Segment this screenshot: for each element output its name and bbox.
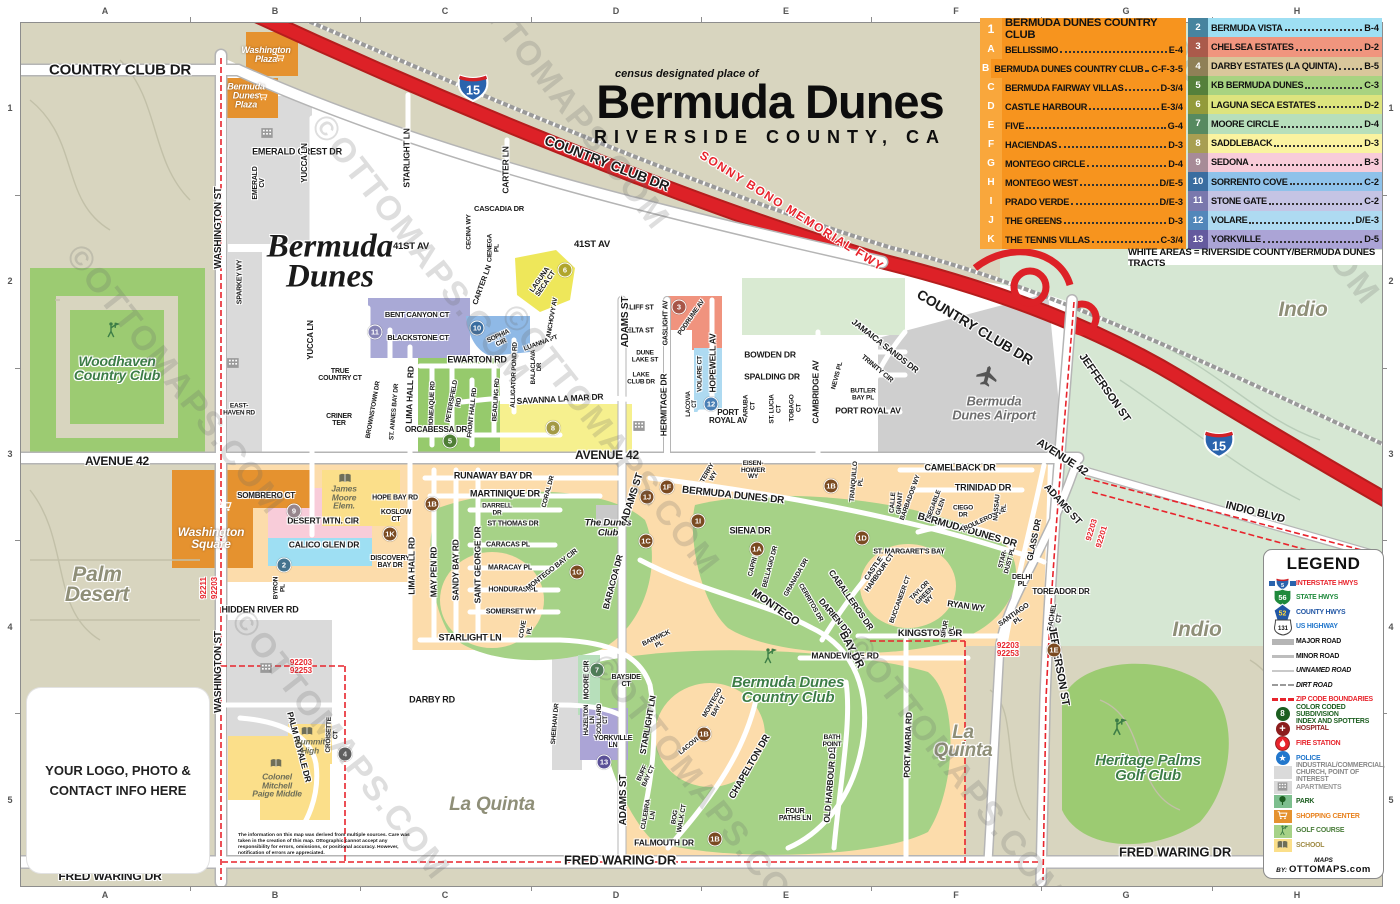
- grid-tick: [15, 713, 20, 714]
- map-spotter: 1G: [570, 565, 585, 580]
- index-row-key: K: [980, 230, 1002, 249]
- index-row-ref: C-3/4: [1161, 235, 1186, 245]
- legend-row-label: POLICE: [1296, 755, 1320, 762]
- street-label: CASCADIA DR: [474, 205, 524, 213]
- index-row: 2BERMUDA VISTAB-4: [1188, 18, 1382, 37]
- street-label: AVENUE 42: [85, 455, 149, 467]
- street-label: FALMOUTH DR: [634, 839, 694, 848]
- index-row-key: G: [980, 154, 1002, 173]
- street-label: PORT ROYAL AV: [835, 407, 900, 416]
- grid-tick: [871, 17, 872, 22]
- legend-row-label: US HIGHWAY: [1296, 623, 1338, 630]
- leader-dots: [1026, 127, 1165, 129]
- index-row-ref: D-4: [1168, 159, 1186, 169]
- legend-footer: MAPS BY:OTTOMAPS.com: [1269, 853, 1378, 876]
- leader-dots: [1125, 89, 1158, 91]
- street-label: Washington Square: [178, 526, 244, 550]
- index-row-key: B: [980, 59, 991, 78]
- street-label: 92203: [211, 577, 219, 599]
- street-label: HAZELTON LN: [584, 705, 596, 736]
- leader-dots: [1281, 126, 1362, 128]
- leader-dots: [1296, 49, 1363, 51]
- leader-dots: [1145, 70, 1149, 72]
- street-label: CALICO GLEN DR: [289, 541, 359, 550]
- svg-text:56: 56: [1278, 594, 1286, 603]
- leader-dots: [1064, 222, 1166, 224]
- map-spotter: 1B: [697, 727, 712, 742]
- logo-line1: YOUR LOGO, PHOTO &: [45, 761, 191, 781]
- grid-number: 2: [7, 276, 12, 286]
- grid-letter: E: [783, 890, 789, 900]
- subdivision-index-left: 1 BERMUDA DUNES COUNTRY CLUB ABELLISSIMO…: [980, 18, 1186, 249]
- street-label: FRED WARING DR: [1119, 845, 1231, 858]
- index-row-key: E: [980, 116, 1002, 135]
- index-row: 11STONE GATEC-2: [1188, 191, 1382, 210]
- leader-dots: [1263, 241, 1362, 243]
- grid-tick: [360, 17, 361, 22]
- index-row-ref: C-F-3-5: [1151, 64, 1186, 74]
- street-label: SIENA DR: [729, 526, 770, 535]
- road-major-icon: [1269, 639, 1296, 645]
- apt-icon: [227, 357, 240, 370]
- index-row-name: PRADO VERDE: [1002, 197, 1069, 207]
- street-label: MARTINIQUE DR: [470, 489, 540, 498]
- street-label: SANDY BAY RD: [452, 539, 461, 600]
- index-row-number: 11: [1188, 191, 1208, 210]
- index-row-name: BERMUDA DUNES COUNTRY CLUB: [991, 64, 1143, 74]
- index-row-name: THE GREENS: [1002, 216, 1062, 226]
- street-label: CAMBRIDGE AV: [812, 360, 821, 423]
- road-unnamed-icon: [1269, 670, 1296, 672]
- street-label: James Moore Elem.: [331, 484, 356, 510]
- index-row-ref: D-3: [1364, 138, 1382, 148]
- street-label: CAMELBACK DR: [924, 463, 995, 472]
- grid-tick: [1212, 886, 1213, 891]
- grid-letter: E: [783, 6, 789, 16]
- leader-dots: [1251, 164, 1363, 166]
- leader-dots: [1249, 222, 1353, 224]
- index-row-name: BERMUDA FAIRWAY VILLAS: [1002, 83, 1123, 93]
- index-row: GMONTEGO CIRCLED-4: [980, 154, 1186, 173]
- index-row: BBERMUDA DUNES COUNTRY CLUBC-F-3-5: [980, 59, 1186, 78]
- school-icon: [1269, 839, 1296, 852]
- legend-row-shopping: SHOPPING CENTER: [1269, 809, 1378, 824]
- street-label: ST THOMAS DR: [488, 520, 539, 527]
- legend-row-label: HOSPITAL: [1296, 725, 1329, 732]
- street-label: TRINIDAD DR: [955, 483, 1011, 492]
- street-label: DUNE LAKE ST: [632, 350, 658, 363]
- map-spotter: 9: [287, 504, 302, 519]
- street-label: Indio: [1278, 300, 1327, 320]
- street-label: HERMITAGE DR: [660, 374, 669, 437]
- index-row-ref: D/E-3: [1356, 215, 1383, 225]
- legend-row-park: PARK: [1269, 795, 1378, 810]
- legend-row-label: MINOR ROAD: [1296, 653, 1339, 660]
- street-label: CARACAS PL: [486, 541, 530, 548]
- street-label: STARLIGHT LN: [403, 128, 412, 187]
- street-label: Bermuda Dunes Airport: [952, 394, 1036, 421]
- index-row-key: H: [980, 173, 1002, 192]
- map-spotter: 8: [546, 421, 561, 436]
- index-row-name: SORRENTO COVE: [1208, 177, 1288, 187]
- police-icon: ★: [1269, 751, 1296, 765]
- street-label: EISEN- HOWER WY: [741, 461, 765, 481]
- interstate-shield-icon: 15: [1202, 428, 1236, 458]
- street-label: YUCCA LN: [307, 320, 315, 359]
- grid-tick: [15, 195, 20, 196]
- street-label: ARUBA CT: [743, 395, 756, 417]
- street-label: FRED WARING DR: [564, 853, 676, 866]
- index-row-ref: D-3: [1168, 216, 1186, 226]
- map-spotter: 1C: [639, 534, 654, 549]
- legend-row-industrial: INDUSTRIAL/COMMERCIAL, CHURCH, POINT OF …: [1269, 766, 1378, 781]
- index-row-ref: D/E-3: [1160, 197, 1187, 207]
- grid-tick: [531, 886, 532, 891]
- grid-letter: C: [442, 890, 449, 900]
- legend: LEGEND 5INTERSTATE HWYS56STATE HWYS52COU…: [1263, 549, 1384, 879]
- legend-row-label: INTERSTATE HWYS: [1296, 580, 1358, 587]
- grid-letter: D: [613, 6, 620, 16]
- grid-tick: [1382, 368, 1387, 369]
- index-row-key: F: [980, 135, 1002, 154]
- index-row-name: STONE GATE: [1208, 196, 1267, 206]
- street-label: La Quinta: [449, 796, 535, 814]
- street-label: TOREADOR DR: [1032, 588, 1089, 596]
- leader-dots: [1060, 51, 1167, 53]
- leader-dots: [1290, 183, 1363, 185]
- street-label: Palm Desert: [65, 565, 129, 605]
- index-row-ref: G-4: [1168, 121, 1186, 131]
- legend-row-spotter: 8COLOR CODED SUBDIVISION INDEX AND SPOTT…: [1269, 707, 1378, 722]
- street-label: NASSAU PL: [993, 494, 1008, 521]
- index-row-name: CHELSEA ESTATES: [1208, 42, 1294, 52]
- street-label: DARBY RD: [409, 695, 455, 704]
- index-row: 10SORRENTO COVEC-2: [1188, 172, 1382, 191]
- street-label: LIMA HALL RD: [405, 366, 416, 424]
- disclaimer: The information on this map was derived …: [238, 833, 414, 858]
- legend-row-label: GOLF COURSE: [1296, 827, 1344, 834]
- street-label: DESERT MTN. CIR: [287, 517, 359, 526]
- street-label: BUTLER BAY PL: [850, 388, 875, 401]
- hospital-icon: +: [1269, 722, 1296, 736]
- street-label: EAST- HAVEN RD: [223, 403, 255, 416]
- index-row: IPRADO VERDED/E-3: [980, 192, 1186, 211]
- street-label: ORCABESSA DR: [405, 426, 467, 434]
- street-label: VOLARE CT: [698, 356, 705, 392]
- grid-letter: H: [1294, 890, 1301, 900]
- grid-number: 3: [7, 449, 12, 459]
- street-label: ADAMS ST: [621, 297, 631, 348]
- index-row: JTHE GREENSD-3: [980, 211, 1186, 230]
- legend-row-school: SCHOOL: [1269, 838, 1378, 853]
- map-spotter: 5: [443, 434, 458, 449]
- legend-row-label: FIRE STATION: [1296, 740, 1340, 747]
- grid-letter: G: [1122, 6, 1129, 16]
- legend-row-label: STATE HWYS: [1296, 594, 1338, 601]
- grid-number: 1: [1388, 103, 1393, 113]
- golfer-icon: [760, 648, 777, 665]
- street-label: TRUE COUNTRY CT: [318, 368, 362, 382]
- legend-row-hwy-us: 131US HIGHWAY: [1269, 620, 1378, 635]
- index-row-name: SADDLEBACK: [1208, 138, 1272, 148]
- legend-row-road-minor: MINOR ROAD: [1269, 649, 1378, 664]
- leader-dots: [1269, 203, 1362, 205]
- street-label: 92203 92253: [997, 642, 1019, 658]
- street-label: GASLIGHT AV: [662, 301, 669, 346]
- index-row-number: 6: [1188, 95, 1208, 114]
- index-row-name: BERMUDA VISTA: [1208, 23, 1283, 33]
- index-row-name: DARBY ESTATES (LA QUINTA): [1208, 61, 1337, 71]
- index-row-ref: E-4: [1169, 45, 1186, 55]
- index-row-number: 5: [1188, 76, 1208, 95]
- street-label: MARACAY PL: [488, 564, 532, 571]
- street-label: PORT ROYAL AV: [709, 409, 747, 425]
- grid-tick: [15, 540, 20, 541]
- grid-letter: F: [953, 890, 959, 900]
- index-row-name: YORKVILLE: [1208, 234, 1261, 244]
- street-label: Bermuda Dunes: [267, 232, 394, 293]
- leader-dots: [1071, 203, 1157, 205]
- grid-number: 4: [7, 622, 12, 632]
- index-row-name: SEDONA: [1208, 157, 1249, 167]
- street-label: EMERALD CV: [252, 166, 266, 199]
- grid-number: 1: [7, 103, 12, 113]
- grid-tick: [1041, 886, 1042, 891]
- grid-tick: [531, 17, 532, 22]
- street-label: Colonel Mitchell Paige Middle: [252, 772, 302, 798]
- street-label: KOSLOW CT: [381, 509, 411, 523]
- legend-row-label: UNNAMED ROAD: [1296, 667, 1351, 674]
- grid-letter: D: [613, 890, 620, 900]
- zip-icon: [1269, 698, 1296, 701]
- street-label: BATH POINT CT: [823, 735, 842, 755]
- ottomaps-brand: OTTOMAPS.com: [1289, 864, 1371, 875]
- index-row-ref: D-2: [1364, 42, 1382, 52]
- index-row-name: BELLISSIMO: [1002, 45, 1058, 55]
- grid-letter: B: [272, 890, 279, 900]
- street-label: RUNAWAY BAY DR: [454, 471, 532, 480]
- index-row-name: FIVE: [1002, 121, 1024, 131]
- index-row-name: THE TENNIS VILLAS: [1002, 235, 1090, 245]
- street-label: WASHINGTON ST: [214, 187, 224, 269]
- street-label: BOWDEN DR: [744, 351, 796, 360]
- index-row-ref: D-2: [1364, 100, 1382, 110]
- map-page: census designated place of Bermuda Dunes…: [0, 0, 1400, 904]
- spotter-icon: 8: [1269, 707, 1296, 721]
- index-row-name: MONTEGO WEST: [1002, 178, 1078, 188]
- golfer-icon: [1108, 718, 1127, 737]
- index-row-name: MONTEGO CIRCLE: [1002, 159, 1085, 169]
- street-label: YUCCA LN: [301, 143, 309, 182]
- index-row-key: A: [980, 40, 1002, 59]
- index-row: DCASTLE HARBOURE-3/4: [980, 97, 1186, 116]
- index-row-key: D: [980, 97, 1002, 116]
- legend-row-apartments: APARTMENTS: [1269, 780, 1378, 795]
- street-label: CRINER TER: [326, 413, 352, 427]
- street-label: BYRON PL: [273, 577, 286, 599]
- grid-number: 3: [1388, 449, 1393, 459]
- index-row-name: CASTLE HARBOUR: [1002, 102, 1087, 112]
- grid-letter: G: [1122, 890, 1129, 900]
- grid-number: 5: [1388, 795, 1393, 805]
- map-spotter: 3: [672, 300, 687, 315]
- book-icon: [339, 472, 352, 485]
- index-row: 4DARBY ESTATES (LA QUINTA)B-5: [1188, 57, 1382, 76]
- map-title-block: census designated place of Bermuda Dunes…: [555, 68, 985, 148]
- road-dirt-icon: [1269, 684, 1296, 686]
- road-minor-icon: [1269, 655, 1296, 658]
- street-label: DISCOVERY BAY DR: [370, 555, 409, 569]
- book-icon: [270, 757, 282, 769]
- grid-tick: [1382, 540, 1387, 541]
- leader-dots: [1285, 29, 1363, 31]
- index-row-ref: E-3/4: [1161, 102, 1186, 112]
- legend-title: LEGEND: [1269, 554, 1378, 574]
- index-row-ref: C-2: [1364, 177, 1382, 187]
- street-label: FOUR PATHS LN: [779, 808, 811, 822]
- street-label: SPALDING DR: [744, 373, 800, 382]
- map-spotter: 1K: [383, 527, 398, 542]
- map-spotter: 1B: [824, 479, 839, 494]
- index-row: 9SEDONAB-3: [1188, 153, 1382, 172]
- street-label: HOPE BAY RD: [372, 494, 418, 501]
- park-area: [742, 278, 905, 335]
- leader-dots: [1339, 68, 1362, 70]
- legend-row-label: APARTMENTS: [1296, 784, 1341, 791]
- street-label: SOMERSET WY: [486, 608, 536, 615]
- street-label: HOPEWELL AV: [709, 333, 718, 392]
- index-row-name: VOLARE: [1208, 215, 1247, 225]
- legend-row-road-dirt: DIRT ROAD: [1269, 678, 1378, 693]
- legend-row-label: MAJOR ROAD: [1296, 638, 1341, 645]
- index-row: 12VOLARED/E-3: [1188, 211, 1382, 230]
- map-spotter: 2: [277, 558, 292, 573]
- grid-tick: [360, 886, 361, 891]
- street-label: LAKE CLUB DR: [627, 372, 655, 385]
- index-row-key: I: [980, 192, 1002, 211]
- index-row-ref: D-3/4: [1161, 83, 1186, 93]
- index-row-number: 3: [1188, 37, 1208, 56]
- index-row-number: 7: [1188, 114, 1208, 133]
- grid-number: 4: [1388, 622, 1393, 632]
- legend-row-golf: GOLF COURSE: [1269, 824, 1378, 839]
- index-row: HMONTEGO WESTD/E-5: [980, 173, 1186, 192]
- grid-tick: [190, 886, 191, 891]
- index-row-name: HACIENDAS: [1002, 140, 1057, 150]
- grid-number: 5: [7, 795, 12, 805]
- svg-text:15: 15: [466, 84, 480, 98]
- grid-letter: C: [442, 6, 449, 16]
- map-spotter: 1E: [1047, 643, 1062, 658]
- street-label: DARRELL DR: [482, 503, 512, 516]
- apartments-icon: [1269, 781, 1296, 794]
- grid-tick: [190, 17, 191, 22]
- map-spotter: 1A: [750, 542, 765, 557]
- grid-tick: [15, 368, 20, 369]
- index-row-name: MOORE CIRCLE: [1208, 119, 1279, 129]
- legend-row-label: ZIP CODE BOUNDARIES: [1296, 696, 1373, 703]
- legend-row-label: SHOPPING CENTER: [1296, 813, 1360, 820]
- golf-icon: [1269, 825, 1296, 838]
- index-row-number: 4: [1188, 57, 1208, 76]
- apt-icon: [261, 127, 274, 140]
- svg-text:131: 131: [1277, 626, 1288, 632]
- grid-tick: [1382, 195, 1387, 196]
- index-row: 7MOORE CIRCLED-4: [1188, 114, 1382, 133]
- cart-icon: [218, 499, 233, 514]
- legend-row-road-unnamed: UNNAMED ROAD: [1269, 663, 1378, 678]
- legend-row-hospital: +HOSPITAL: [1269, 722, 1378, 737]
- street-label: BLACKSTONE CT: [387, 334, 448, 342]
- leader-dots: [1087, 165, 1166, 167]
- index-header-title: BERMUDA DUNES COUNTRY CLUB: [1002, 17, 1186, 41]
- legend-row-label: SCHOOL: [1296, 842, 1324, 849]
- legend-row-road-major: MAJOR ROAD: [1269, 634, 1378, 649]
- street-label: COUNTRY CLUB DR: [49, 62, 191, 77]
- street-label: Indio: [1172, 620, 1221, 640]
- legend-row-fire: FIRE STATION: [1269, 736, 1378, 751]
- street-label: CIENEGA PL: [487, 234, 500, 262]
- legend-row-label: DIRT ROAD: [1296, 682, 1332, 689]
- street-label: CECINA WY: [467, 214, 474, 249]
- street-label: LIMA HALL RD: [408, 537, 417, 595]
- index-row-ref: D-4: [1364, 119, 1382, 129]
- street-label: ADAMS ST: [619, 775, 629, 826]
- grid-letter: A: [102, 890, 109, 900]
- leader-dots: [1080, 184, 1158, 186]
- index-row-key: C: [980, 78, 1002, 97]
- cart-icon: [258, 92, 268, 102]
- index-row-number: 12: [1188, 211, 1208, 230]
- index-row-name: KB BERMUDA DUNES: [1208, 80, 1303, 90]
- index-row: ABELLISSIMOE-4: [980, 40, 1186, 59]
- index-row-ref: B-3: [1364, 157, 1382, 167]
- street-label: Bermuda Dunes Country Club: [732, 675, 844, 705]
- map-spotter: 1D: [855, 531, 870, 546]
- street-label: BENT CANYON CT: [385, 311, 449, 319]
- svg-text:52: 52: [1279, 611, 1287, 618]
- map-spotter: 1B: [425, 497, 440, 512]
- leader-dots: [1274, 145, 1362, 147]
- index-row-number: 10: [1188, 172, 1208, 191]
- grid-tick: [701, 886, 702, 891]
- index-row-key: J: [980, 211, 1002, 230]
- industrial-icon: [1269, 766, 1296, 779]
- index-row-number: 9: [1188, 153, 1208, 172]
- index-row: 3CHELSEA ESTATESD-2: [1188, 37, 1382, 56]
- svg-text:15: 15: [1212, 440, 1226, 454]
- park-icon: [1269, 795, 1296, 808]
- map-spotter: 6: [558, 263, 573, 278]
- index-row-name: LAGUNA SECA ESTATES: [1208, 100, 1316, 110]
- index-row-ref: D-5: [1364, 234, 1382, 244]
- title-sub: RIVERSIDE COUNTY, CA: [555, 127, 985, 148]
- logo-line2: CONTACT INFO HERE: [45, 781, 191, 801]
- index-row-number: 8: [1188, 134, 1208, 153]
- index-header-number: 1: [980, 18, 1002, 40]
- index-row-ref: C-3: [1364, 80, 1382, 90]
- grid-letter: H: [1294, 6, 1301, 16]
- grid-number: 2: [1388, 276, 1393, 286]
- street-label: SPARKEY WY: [236, 260, 243, 304]
- index-row: 5KB BERMUDA DUNESC-3: [1188, 76, 1382, 95]
- street-label: 41ST AV: [574, 240, 610, 250]
- street-label: LACOVIA CT: [686, 391, 698, 417]
- leader-dots: [1059, 146, 1166, 148]
- page-title: Bermuda Dunes: [555, 80, 985, 125]
- street-label: MAY PEN RD: [430, 547, 439, 597]
- street-label: TOBAGO CT: [789, 394, 802, 421]
